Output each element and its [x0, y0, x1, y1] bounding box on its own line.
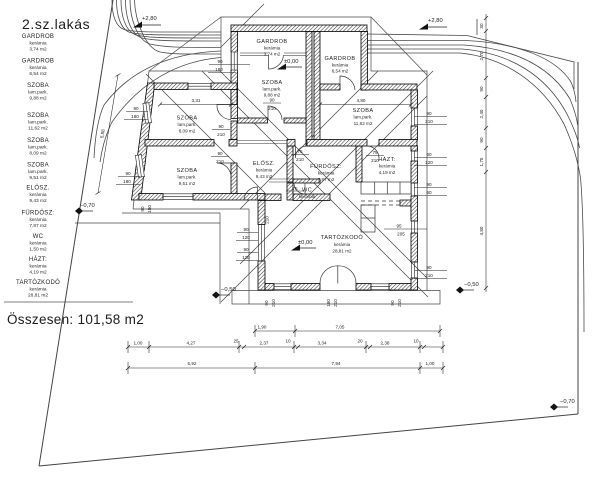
- svg-text:30: 30: [479, 23, 484, 29]
- svg-text:GARDROB: GARDROB: [22, 59, 54, 65]
- svg-text:HÁZT:: HÁZT:: [29, 256, 47, 263]
- svg-text:kerámia: kerámia: [332, 63, 349, 68]
- svg-text:−0,70: −0,70: [80, 203, 95, 209]
- svg-text:28,81 m2: 28,81 m2: [28, 293, 48, 299]
- svg-text:90: 90: [426, 182, 432, 187]
- svg-text:TARTÓZKODÓ: TARTÓZKODÓ: [16, 279, 60, 286]
- svg-text:kerámia: kerámia: [334, 242, 351, 247]
- svg-text:180: 180: [215, 67, 223, 72]
- svg-text:lam.park.: lam.park.: [263, 87, 282, 92]
- svg-text:4,27: 4,27: [187, 341, 196, 346]
- svg-text:SZOBA: SZOBA: [27, 83, 49, 89]
- svg-text:210: 210: [268, 106, 276, 111]
- svg-text:lam.park.: lam.park.: [28, 120, 48, 126]
- svg-text:4,19 m2: 4,19 m2: [29, 270, 47, 276]
- svg-text:lam.park.: lam.park.: [28, 90, 48, 96]
- svg-text:8,09 m2: 8,09 m2: [29, 151, 47, 157]
- svg-text:210: 210: [216, 159, 224, 164]
- svg-text:2,37: 2,37: [260, 341, 269, 346]
- svg-text:1,75: 1,75: [479, 157, 484, 166]
- svg-text:9,88 m2: 9,88 m2: [29, 96, 47, 102]
- svg-text:28,81 m2: 28,81 m2: [332, 249, 352, 254]
- svg-text:GARDROB: GARDROB: [256, 39, 287, 45]
- svg-text:1,50 m2: 1,50 m2: [29, 247, 47, 253]
- svg-text:11,62 m2: 11,62 m2: [28, 126, 48, 132]
- svg-text:3,31: 3,31: [192, 98, 201, 103]
- svg-text:210: 210: [217, 132, 225, 137]
- svg-text:210: 210: [425, 119, 433, 124]
- svg-text:1,90: 1,90: [258, 325, 267, 330]
- svg-text:±0,00: ±0,00: [284, 59, 298, 65]
- svg-text:kerámia: kerámia: [29, 65, 46, 71]
- svg-text:WC: WC: [33, 234, 44, 240]
- svg-text:90: 90: [390, 300, 395, 306]
- svg-text:FÜRDŐSZ:: FÜRDŐSZ:: [21, 210, 54, 217]
- svg-text:9,43 m2: 9,43 m2: [256, 174, 273, 179]
- svg-text:3,34: 3,34: [318, 341, 327, 346]
- svg-text:kerámia: kerámia: [29, 217, 46, 223]
- svg-text:4,19 m2: 4,19 m2: [379, 170, 396, 175]
- svg-text:6,54 m2: 6,54 m2: [29, 71, 47, 77]
- svg-text:9,43 m2: 9,43 m2: [29, 198, 47, 204]
- svg-text:lam.park.: lam.park.: [178, 175, 197, 180]
- svg-text:+2,80: +2,80: [142, 16, 157, 22]
- svg-text:7,87 m2: 7,87 m2: [318, 177, 335, 182]
- svg-text:9,51 m2: 9,51 m2: [179, 181, 196, 186]
- svg-text:210: 210: [425, 273, 433, 278]
- svg-text:120: 120: [242, 255, 250, 260]
- svg-text:210: 210: [265, 216, 270, 224]
- svg-text:11,62 m2: 11,62 m2: [354, 121, 373, 126]
- svg-text:4,80: 4,80: [357, 98, 366, 103]
- svg-text:GARDROB: GARDROB: [324, 56, 355, 62]
- svg-text:90: 90: [426, 111, 432, 116]
- svg-text:2,70: 2,70: [479, 51, 484, 60]
- svg-text:kerámia: kerámia: [29, 264, 46, 270]
- svg-text:90: 90: [218, 124, 224, 129]
- svg-text:180: 180: [326, 299, 331, 307]
- svg-text:60: 60: [426, 152, 432, 157]
- svg-text:7,87 m2: 7,87 m2: [29, 223, 47, 229]
- svg-text:205: 205: [397, 232, 405, 237]
- svg-text:ELŐSZ.: ELŐSZ.: [253, 160, 275, 167]
- svg-text:kerámia: kerámia: [256, 168, 273, 173]
- svg-text:1,00: 1,00: [426, 361, 435, 366]
- svg-text:10: 10: [413, 339, 419, 344]
- svg-text:8,09 m2: 8,09 m2: [179, 129, 196, 134]
- svg-text:90: 90: [140, 206, 145, 212]
- svg-text:lam.park.: lam.park.: [28, 169, 48, 175]
- svg-text:7,94: 7,94: [332, 361, 341, 366]
- svg-text:90: 90: [479, 86, 484, 92]
- svg-text:3,74 m2: 3,74 m2: [264, 52, 281, 57]
- svg-text:−0,50: −0,50: [221, 287, 236, 293]
- svg-text:90: 90: [125, 171, 131, 176]
- svg-text:95: 95: [396, 224, 402, 229]
- svg-text:180: 180: [131, 114, 139, 119]
- svg-text:210: 210: [296, 157, 304, 162]
- svg-text:75: 75: [297, 149, 303, 154]
- svg-text:1,00: 1,00: [134, 341, 143, 346]
- svg-text:120: 120: [242, 235, 250, 240]
- svg-text:2.sz.lakás: 2.sz.lakás: [22, 16, 90, 32]
- svg-text:kerámia: kerámia: [379, 164, 396, 169]
- svg-text:SZOBA: SZOBA: [27, 138, 49, 144]
- svg-text:TARTÓZKODÓ: TARTÓZKODÓ: [321, 234, 364, 241]
- svg-text:210: 210: [397, 299, 402, 307]
- svg-text:180: 180: [123, 179, 131, 184]
- svg-text:75: 75: [372, 150, 378, 155]
- svg-text:lam.park.: lam.park.: [354, 115, 373, 120]
- svg-text:60: 60: [426, 190, 432, 195]
- svg-text:lam.park.: lam.park.: [28, 145, 48, 151]
- svg-text:SZOBA: SZOBA: [27, 163, 49, 169]
- svg-text:6,54 m2: 6,54 m2: [332, 69, 349, 74]
- svg-text:HÁZT:: HÁZT:: [378, 156, 396, 163]
- svg-text:75: 75: [292, 186, 298, 191]
- svg-text:210: 210: [333, 299, 338, 307]
- svg-text:SZOBA: SZOBA: [262, 80, 283, 86]
- svg-text:210: 210: [271, 299, 276, 307]
- svg-text:20: 20: [357, 339, 363, 344]
- svg-text:+2,80: +2,80: [428, 18, 443, 24]
- svg-text:±0,00: ±0,00: [298, 240, 312, 246]
- svg-text:3,74 m2: 3,74 m2: [29, 47, 47, 53]
- svg-text:25: 25: [233, 339, 239, 344]
- svg-text:4,80: 4,80: [479, 226, 484, 235]
- svg-text:FÜRDŐSZ:: FÜRDŐSZ:: [310, 163, 342, 170]
- svg-text:180: 180: [147, 205, 152, 213]
- svg-text:−0,50: −0,50: [464, 282, 479, 288]
- svg-text:GARDROB: GARDROB: [22, 34, 54, 40]
- svg-text:90: 90: [217, 59, 223, 64]
- svg-text:120: 120: [425, 160, 433, 165]
- svg-text:5,92: 5,92: [188, 361, 197, 366]
- svg-text:SZOBA: SZOBA: [177, 168, 198, 174]
- svg-text:SZOBA: SZOBA: [27, 113, 49, 119]
- svg-text:90: 90: [217, 151, 223, 156]
- svg-text:−0,70: −0,70: [560, 399, 575, 405]
- svg-text:9,51 m2: 9,51 m2: [29, 175, 47, 181]
- svg-text:ELŐSZ.: ELŐSZ.: [26, 185, 49, 192]
- svg-text:90: 90: [479, 137, 484, 143]
- svg-text:SZOBA: SZOBA: [353, 108, 374, 114]
- svg-text:9,88 m2: 9,88 m2: [264, 93, 281, 98]
- svg-text:90: 90: [264, 300, 269, 306]
- svg-text:kerámia: kerámia: [29, 192, 46, 198]
- svg-text:kerámia: kerámia: [29, 241, 46, 247]
- svg-text:kerámia: kerámia: [299, 194, 316, 199]
- svg-text:90: 90: [133, 106, 139, 111]
- svg-text:WC: WC: [302, 188, 312, 194]
- svg-text:90: 90: [243, 227, 249, 232]
- svg-text:90: 90: [243, 247, 249, 252]
- svg-text:90: 90: [426, 265, 432, 270]
- svg-text:2,40: 2,40: [479, 109, 484, 118]
- svg-text:90: 90: [269, 98, 275, 103]
- svg-text:kerámia: kerámia: [318, 171, 335, 176]
- svg-text:2,38: 2,38: [381, 341, 390, 346]
- svg-text:SZOBA: SZOBA: [177, 116, 198, 122]
- svg-text:Összesen: 101,58 m2: Összesen: 101,58 m2: [7, 312, 144, 327]
- svg-text:kerámia: kerámia: [29, 41, 46, 47]
- svg-text:kerámia: kerámia: [29, 287, 46, 293]
- svg-text:10: 10: [285, 339, 291, 344]
- svg-text:lam.park.: lam.park.: [178, 122, 197, 127]
- svg-text:7,05: 7,05: [336, 325, 345, 330]
- svg-text:kerámia: kerámia: [264, 46, 281, 51]
